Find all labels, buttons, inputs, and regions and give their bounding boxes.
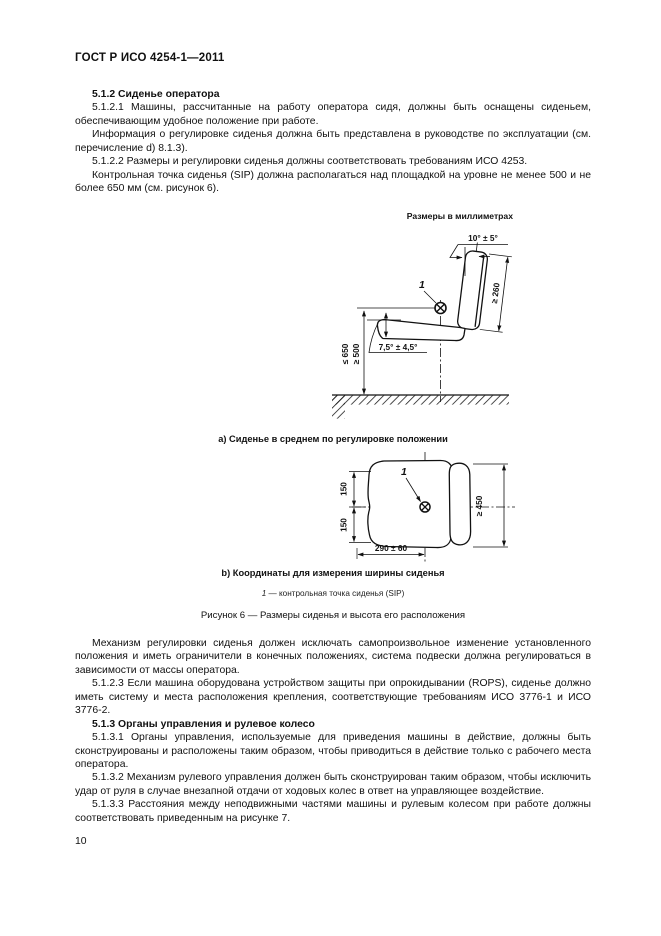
half-width-bottom-dim: 150 bbox=[339, 517, 349, 531]
backrest-angle-dim: 10° ± 5° bbox=[468, 233, 498, 243]
sip-height-min-dim: ≥ 500 bbox=[351, 343, 361, 364]
paragraph: 5.1.2.2 Размеры и регулировки сиденья до… bbox=[75, 155, 591, 168]
figure-6b-seat-top-view: 1 150 150 ≥ 450 bbox=[322, 450, 522, 566]
sip-marker bbox=[420, 502, 430, 512]
paragraph: Информация о регулировке сиденья должна … bbox=[75, 128, 591, 155]
figure-6b-caption: b) Координаты для измерения ширины сиден… bbox=[75, 567, 591, 580]
paragraph: 5.1.3.1 Органы управления, используемые … bbox=[75, 731, 591, 771]
sip-height-dimension: ≤ 650 ≥ 500 bbox=[340, 311, 364, 394]
paragraph: 5.1.3.2 Механизм рулевого управления дол… bbox=[75, 771, 591, 798]
sip-leader-line bbox=[424, 291, 436, 303]
sip-offset-dim: 290 ± 60 bbox=[375, 543, 408, 553]
sip-marker bbox=[435, 303, 446, 314]
paragraph: Механизм регулировки сиденья должен искл… bbox=[75, 637, 591, 677]
figure-6-caption: Рисунок 6 — Размеры сиденья и высота его… bbox=[75, 609, 591, 622]
section-heading-513: 5.1.3 Органы управления и рулевое колесо bbox=[75, 718, 591, 731]
document-page: ГОСТ Р ИСО 4254-1—2011 5.1.2 Сиденье опе… bbox=[0, 0, 661, 936]
sip-ref-label: 1 bbox=[419, 279, 425, 291]
paragraph: 5.1.2.3 Если машина оборудована устройст… bbox=[75, 677, 591, 717]
seat-top-view-drawing: 1 150 150 ≥ 450 bbox=[322, 450, 522, 566]
body-text-column: 5.1.2 Сиденье оператора 5.1.2.1 Машины, … bbox=[75, 88, 591, 825]
paragraph: 5.1.3.3 Расстояния между неподвижными ча… bbox=[75, 798, 591, 825]
seat-side-view-drawing: ≥ 260 10° ± 5° 1 bbox=[327, 226, 539, 432]
ground-symbol bbox=[332, 395, 509, 419]
sip-height-max-dim: ≤ 650 bbox=[340, 343, 350, 364]
seat-cushion bbox=[377, 320, 465, 341]
seat-width-dimension: ≥ 450 bbox=[473, 464, 508, 547]
legend-ref-number: 1 bbox=[262, 589, 267, 598]
paragraph: 5.1.2.1 Машины, рассчитанные на работу о… bbox=[75, 101, 591, 128]
standard-header: ГОСТ Р ИСО 4254-1—2011 bbox=[75, 52, 225, 64]
page-number: 10 bbox=[75, 836, 87, 847]
figure-6a-seat-side-view: ≥ 260 10° ± 5° 1 bbox=[327, 226, 539, 432]
figure-units-note: Размеры в миллиметрах bbox=[327, 210, 513, 223]
sip-ref-label: 1 bbox=[401, 466, 407, 478]
seat-width-dim: ≥ 450 bbox=[474, 495, 484, 516]
figure-legend: 1 — контрольная точка сиденья (SIP) bbox=[75, 587, 591, 600]
backrest-height-dim: ≥ 260 bbox=[489, 282, 501, 304]
legend-text: — контрольная точка сиденья (SIP) bbox=[269, 589, 405, 598]
figure-6a-caption: а) Сиденье в среднем по регулировке поло… bbox=[75, 433, 591, 446]
half-width-dimensions: 150 150 bbox=[339, 471, 372, 542]
section-heading-512: 5.1.2 Сиденье оператора bbox=[75, 88, 591, 101]
cushion-angle-dim: 7,5° ± 4,5° bbox=[379, 342, 418, 352]
half-width-top-dim: 150 bbox=[339, 481, 349, 495]
seat-cushion-top bbox=[368, 460, 453, 547]
paragraph: Контрольная точка сиденья (SIP) должна р… bbox=[75, 169, 591, 196]
seat-backrest-top bbox=[449, 463, 470, 545]
